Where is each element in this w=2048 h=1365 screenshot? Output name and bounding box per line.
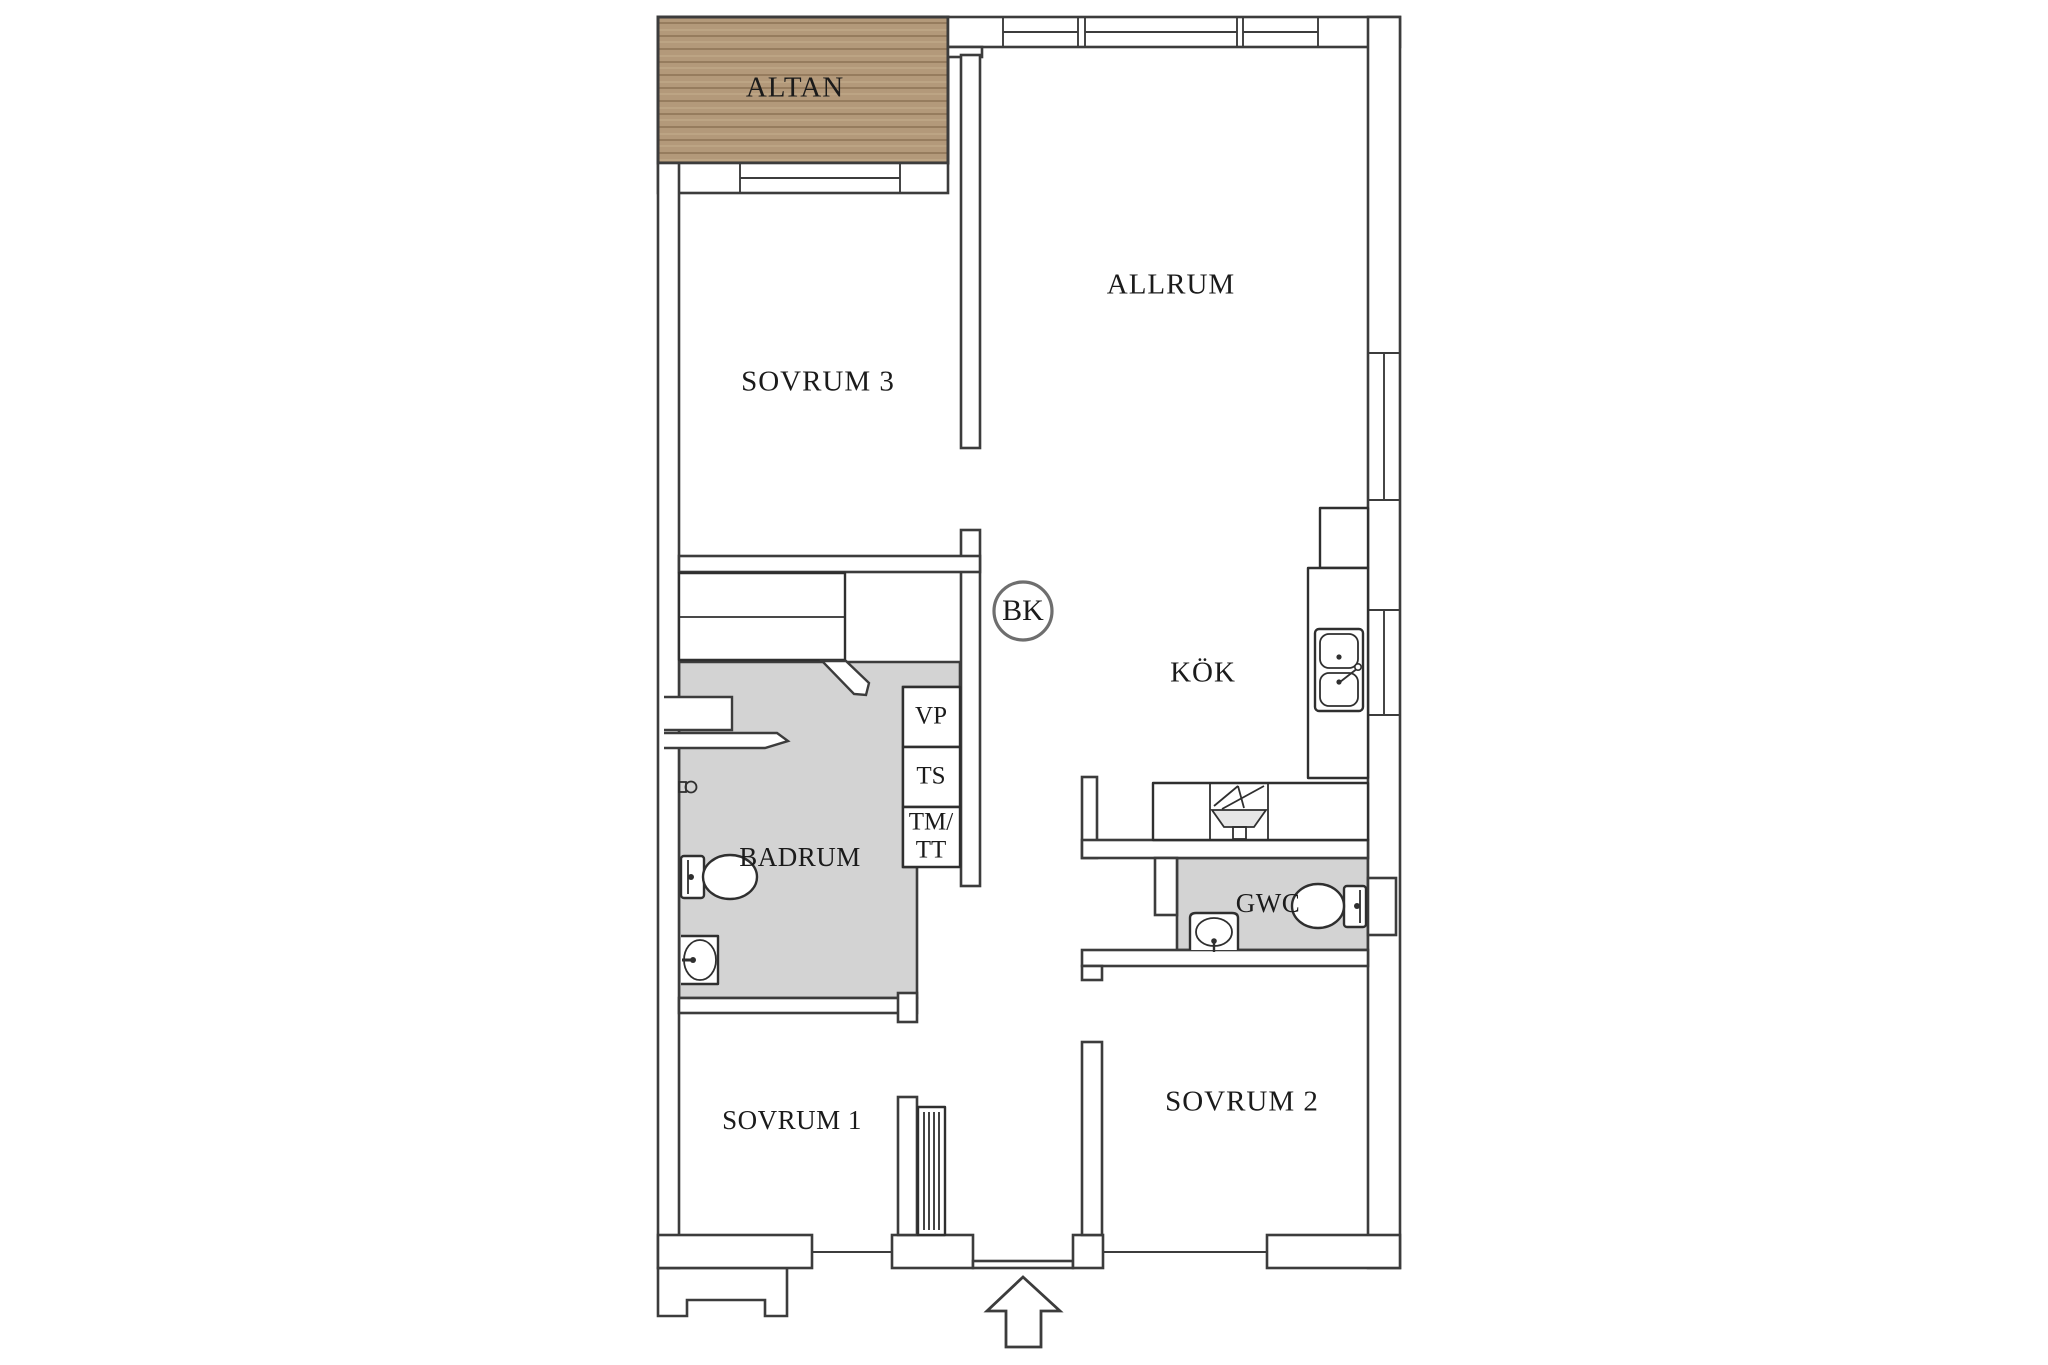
label-sovrum3: SOVRUM 3 — [741, 366, 895, 398]
label-sovrum2: SOVRUM 2 — [1165, 1086, 1319, 1118]
wall-sovrum1-east — [898, 1097, 917, 1235]
label-allrum: ALLRUM — [1107, 269, 1235, 301]
wall-sovrum3-allrum — [961, 55, 980, 448]
gwc-sink-icon — [1190, 913, 1238, 952]
wall-bottom-west — [658, 1235, 812, 1268]
gwc-toilet-icon — [1292, 884, 1366, 928]
bk-label: BK — [1002, 594, 1044, 627]
window-sovrum2-south — [1103, 1235, 1267, 1268]
wall-sovrum2-door-jamb — [1082, 966, 1102, 980]
label-sovrum1: SOVRUM 1 — [722, 1105, 862, 1135]
wall-sovrum2-north — [1082, 950, 1368, 966]
badrum-sink-icon — [681, 936, 718, 984]
wall-sovrum2-west — [1082, 1042, 1102, 1235]
radiator-icon — [918, 1107, 945, 1235]
wall-gwc-west — [1155, 858, 1177, 915]
wall-bottom-center — [892, 1235, 973, 1268]
entry-door-threshold — [973, 1261, 1073, 1268]
wall-hall-badrum — [961, 530, 980, 886]
label-tmtt-1: TM/ — [909, 809, 954, 836]
floorplan-drawing: BK ALTAN SOVRUM 3 ALLRUM KÖK BADRUM GWC … — [0, 0, 2048, 1365]
label-altan: ALTAN — [746, 72, 844, 104]
wall-badrum-sovrum1 — [679, 998, 917, 1013]
badrum-west-door-leaf-icon — [664, 733, 788, 748]
wall-bottom-east — [1267, 1235, 1400, 1268]
label-vp: VP — [915, 703, 947, 730]
label-badrum: BADRUM — [739, 842, 861, 872]
window-sovrum1-south — [812, 1235, 892, 1268]
wall-kok-south — [1082, 840, 1368, 858]
entrance-porch — [658, 1268, 787, 1316]
wall-sovrum3-south — [679, 556, 980, 572]
wall-bottom-entry-jamb — [1073, 1235, 1103, 1268]
wall-sovrum1-door-jamb — [898, 993, 917, 1022]
label-ts: TS — [916, 763, 945, 790]
entry-arrow-icon — [987, 1277, 1060, 1347]
floorplan-page: BK ALTAN SOVRUM 3 ALLRUM KÖK BADRUM GWC … — [0, 0, 2048, 1365]
badrum-west-door-recess — [664, 697, 732, 730]
label-tmtt-2: TT — [916, 837, 947, 864]
wall-gwc-east-recess — [1368, 878, 1396, 935]
kitchen-tall-unit — [1320, 508, 1368, 568]
bk-marker: BK — [994, 582, 1052, 640]
label-gwc: GWC — [1236, 888, 1301, 918]
kitchen-sink-icon — [1315, 629, 1363, 711]
label-kok: KÖK — [1170, 657, 1236, 689]
wardrobe-nook — [679, 573, 845, 660]
